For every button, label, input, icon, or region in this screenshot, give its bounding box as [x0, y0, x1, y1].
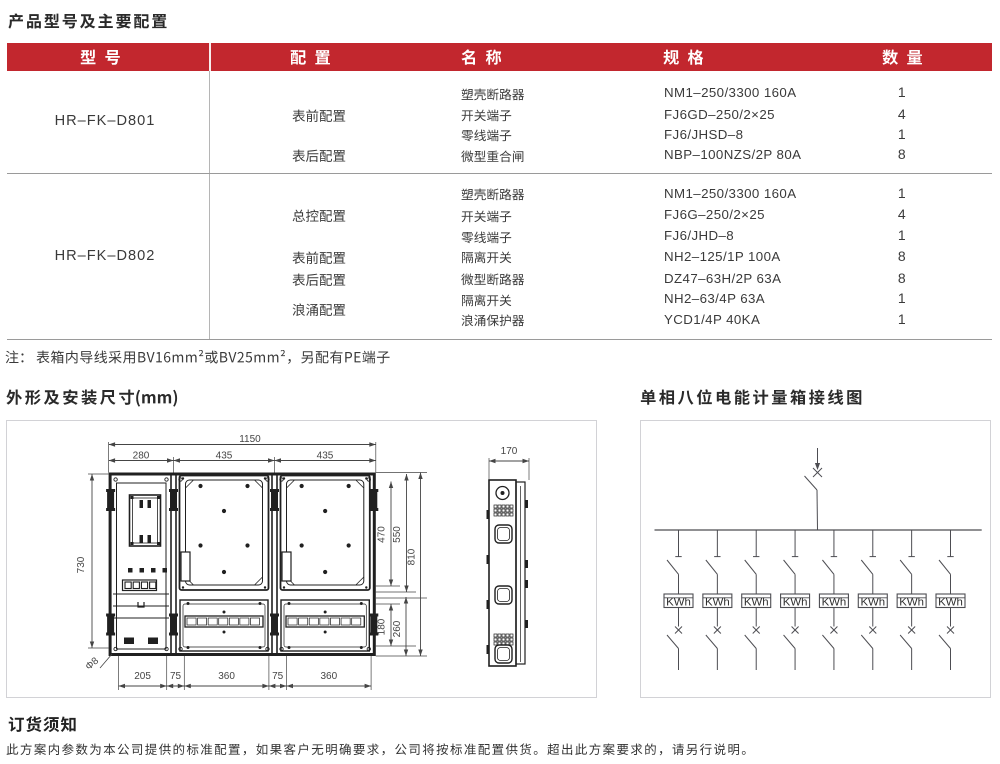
svg-text:435: 435	[216, 451, 233, 462]
svg-text:470: 470	[377, 526, 388, 543]
svg-text:360: 360	[320, 671, 337, 682]
svg-text:730: 730	[76, 556, 87, 573]
svg-text:KWh: KWh	[899, 596, 924, 608]
svg-text:435: 435	[317, 451, 334, 462]
svg-text:205: 205	[134, 671, 151, 682]
svg-text:170: 170	[501, 446, 518, 457]
svg-text:KWh: KWh	[822, 596, 847, 608]
svg-text:1150: 1150	[239, 434, 261, 445]
svg-text:280: 280	[133, 451, 150, 462]
svg-text:550: 550	[392, 526, 403, 543]
svg-text:360: 360	[218, 671, 235, 682]
svg-text:KWh: KWh	[666, 596, 691, 608]
svg-text:KWh: KWh	[938, 596, 963, 608]
svg-text:KWh: KWh	[860, 596, 885, 608]
svg-text:260: 260	[392, 620, 403, 637]
svg-text:180: 180	[377, 618, 388, 635]
svg-text:75: 75	[170, 671, 182, 682]
svg-text:KWh: KWh	[783, 596, 808, 608]
svg-text:810: 810	[407, 548, 418, 565]
svg-text:KWh: KWh	[705, 596, 730, 608]
svg-text:75: 75	[272, 671, 284, 682]
svg-text:KWh: KWh	[744, 596, 769, 608]
svg-text:Φ8: Φ8	[84, 655, 102, 672]
